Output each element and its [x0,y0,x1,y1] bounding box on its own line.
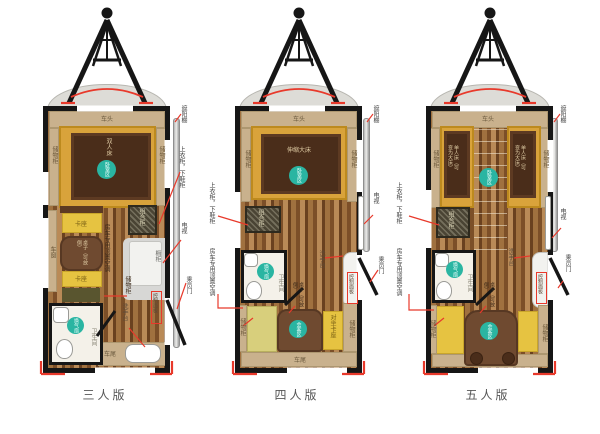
front-label: 车头 [474,114,502,123]
storage-label-br: 储物柜 [347,320,354,344]
storage-label-left: 储物柜 [431,150,438,174]
stool-left [470,352,483,365]
toilet [56,339,73,359]
bedroom-zone-marker: 卧室区 [97,160,116,179]
awning-label: 遮阳棚 [371,105,378,129]
entry-door-open [359,258,377,295]
storage-label-left: 储物柜 [50,146,57,170]
trailer-front-cap [47,84,167,112]
tv-panel [545,196,551,250]
plan2-caption: 四人版 [197,386,397,403]
combo-label: 组合柜 [137,208,144,230]
storage-chest [62,288,100,302]
wardrobe-label: 上衣柜，下鞋柜 [177,146,184,192]
awning-label: 遮阳棚 [179,105,186,129]
toilet [436,281,452,300]
door-label: 乘员门 [563,254,570,278]
storage-label-br: 储物柜 [540,324,547,348]
storage-mid-label: 储物柜 [123,276,130,300]
bench-left [436,306,464,354]
rear-basin [125,344,161,363]
bed-label: 双人床 [104,138,111,160]
table-label: 桌子（可放倒） [289,282,304,309]
basin-label: 洗手台 [506,248,513,272]
combo-label: 组合柜 [446,211,453,233]
tv-label: 电视 [179,222,186,238]
bench-left [247,306,277,352]
trailer-front-cap [239,84,359,112]
plan1-caption: 三人版 [5,386,205,403]
vent-fan-marker: 换气扇 [67,317,84,334]
bedroom-zone-marker: 卧室区 [289,166,308,185]
awning-rail [363,118,370,252]
panel-label: 控制面板 [152,293,158,323]
floorplan-image: 卧室区 换气扇 [0,0,600,434]
bathroom-sink [53,307,69,323]
plan-five-person: 卧室区 换气扇 会客区 [388,0,588,420]
tv-label: 电视 [371,192,378,208]
storage-label-right: 储物柜 [541,150,548,174]
bench-right [518,311,538,352]
wardrobe-label: 上衣柜，下鞋柜 [207,182,214,228]
panel-label: 控制面板 [348,274,354,304]
booth-label-lower: 卡座 [71,274,91,283]
cupboard-label: 橱柜 [153,250,160,266]
wardrobe-label: 上衣柜，下鞋柜 [394,182,401,228]
front-label: 车头 [285,114,313,123]
center-walkway [474,126,507,250]
combo-cabinet [245,206,281,233]
bathroom-label: 卫生间 [276,274,283,298]
roof-ac-label: 房车专用顶置空调 [207,248,214,304]
bed-label: 伸缩大床 [279,145,319,154]
bed-label-left: 单人床（可变为大床） [445,145,459,173]
table-label: 桌子（可放倒） [480,282,495,309]
plan-three-person: 卧室区 换气扇 [5,0,205,420]
toilet [246,281,262,300]
booth-backrest [60,206,103,213]
roof-ac-label: 房车专用顶置空调 [394,248,401,304]
booth-label-upper: 卡座 [71,219,91,228]
storage-label-bl: 储物柜 [238,318,245,342]
door-label: 乘员门 [184,276,191,300]
sliding-bed [261,134,341,194]
vent-fan-marker: 换气扇 [446,261,463,278]
awning-rail [551,118,558,252]
panel-label: 控制面板 [537,274,543,304]
storage-label-right: 储物柜 [349,150,356,174]
table-label: 桌子（可放倒） [73,240,88,267]
bedroom-zone-marker: 卧室区 [479,168,498,187]
guest-zone-marker: 会客区 [480,322,498,340]
trailer-front-cap [430,84,550,112]
vent-fan-marker: 换气扇 [257,263,274,280]
basin-label: 洗手台 [317,250,324,274]
awning-label: 遮阳棚 [558,105,565,129]
storage-label-left: 储物柜 [243,150,250,174]
rear-label: 车尾 [289,355,311,364]
tv-label: 电视 [558,208,565,224]
door-label: 乘员门 [376,256,383,280]
front-label: 车头 [93,114,121,123]
guest-zone-marker: 会客区 [289,320,307,338]
combo-label: 组合柜 [256,209,263,231]
basin-label: 洗手台 [120,303,127,327]
plan3-caption: 五人版 [388,386,588,403]
plan-four-person: 卧室区 换气扇 会客区 [197,0,397,420]
roof-ac-label: 房车专用顶置空调 [102,224,109,280]
bed-label-right: 单人床（可变为大床） [512,145,526,173]
facing-booth-label: 对坐卡座 [328,314,335,346]
storage-label-right: 储物柜 [157,146,164,170]
bathroom-label: 卫生间 [465,274,472,298]
bathroom-label: 卫生间 [89,328,96,352]
window-label: 车窗 [48,246,55,262]
bathroom-sink [244,253,258,267]
stool-right [502,352,515,365]
combo-cabinet [436,207,470,238]
storage-label-bl: 储物柜 [428,320,435,344]
rear-label: 车尾 [99,349,121,358]
tv-panel [358,196,364,250]
